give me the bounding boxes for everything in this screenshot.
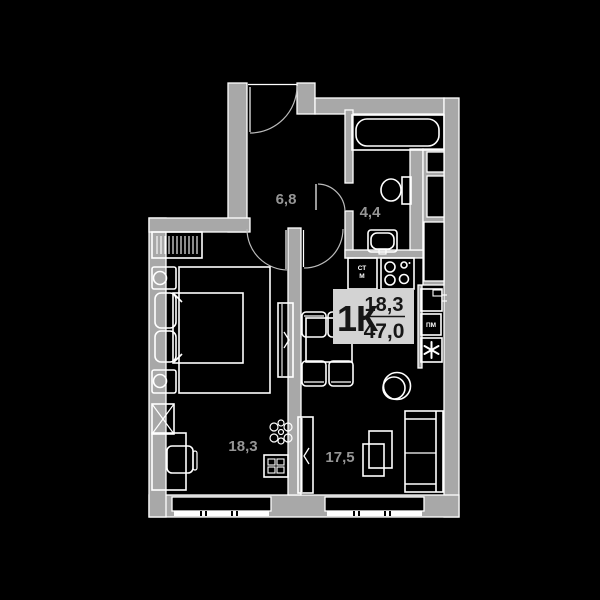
window-bedroom bbox=[172, 497, 271, 516]
bedroom-area-label: 18,3 bbox=[228, 438, 257, 455]
wall-partition bbox=[288, 228, 301, 495]
hall-area-label: 6,8 bbox=[276, 191, 297, 208]
coffee-table-icon bbox=[363, 431, 392, 476]
bedroom-furniture bbox=[152, 232, 293, 490]
wall-entry-jamb bbox=[297, 83, 315, 114]
washer-label-2: М bbox=[359, 273, 364, 280]
bathtub-icon bbox=[352, 115, 444, 150]
wall-hall-left bbox=[228, 83, 247, 232]
bath-door-arc bbox=[318, 184, 345, 211]
double-bed-icon bbox=[155, 267, 270, 393]
desk-chair-icon bbox=[167, 446, 197, 473]
washer-label-1: СТ bbox=[358, 265, 367, 272]
wall-right bbox=[444, 98, 459, 517]
shaft-box bbox=[427, 176, 444, 217]
toilet-icon bbox=[381, 177, 411, 204]
bedroom-door-arc bbox=[247, 229, 288, 270]
apartment-info-box: 1К 18,3 47,0 bbox=[333, 289, 414, 344]
stove-icon bbox=[381, 258, 414, 289]
wall-top bbox=[315, 98, 444, 114]
wall-bedroom-top bbox=[149, 218, 250, 232]
floor-plan-svg: 6,8 4,4 18,3 17,5 СТ М ПМ 1К 18,3 47,0 bbox=[0, 0, 600, 600]
wall-bath-right bbox=[410, 149, 423, 250]
shafts bbox=[424, 152, 444, 281]
total-area-value: 47,0 bbox=[364, 320, 405, 343]
bathroom-area-label: 4,4 bbox=[360, 204, 382, 221]
pouf-icon bbox=[383, 373, 411, 400]
entry-door-arc bbox=[250, 86, 297, 133]
oven-icon bbox=[421, 289, 447, 311]
sofa-icon bbox=[405, 411, 443, 492]
dishwasher-label: ПМ bbox=[426, 322, 436, 329]
fridge-icon bbox=[421, 338, 442, 362]
living-area-label: 17,5 bbox=[325, 449, 354, 466]
shaft-box bbox=[424, 222, 444, 281]
window-living bbox=[325, 497, 424, 516]
shaft-box bbox=[427, 152, 444, 172]
kitchen-door-arc bbox=[304, 229, 343, 268]
drawer-unit-icon bbox=[264, 455, 288, 477]
living-area-value: 18,3 bbox=[365, 294, 404, 316]
floor-plan: 6,8 4,4 18,3 17,5 СТ М ПМ 1К 18,3 47,0 bbox=[0, 0, 600, 600]
